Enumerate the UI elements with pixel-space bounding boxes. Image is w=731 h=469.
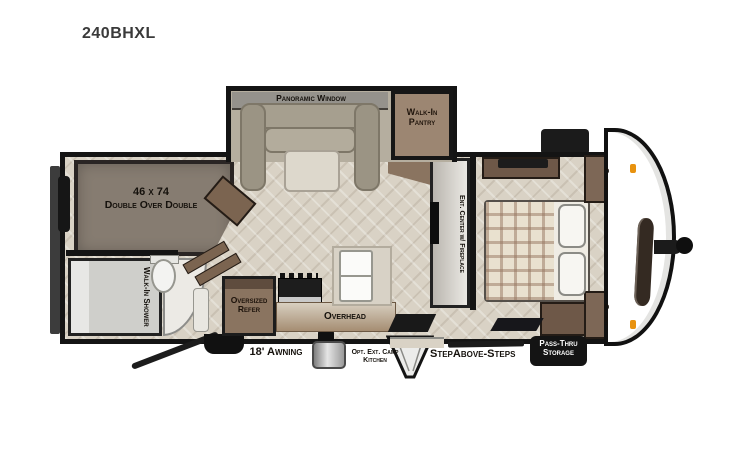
bedroom-nightstand [540, 302, 586, 336]
fireplace [430, 202, 439, 244]
sofa-right-arm [354, 103, 380, 191]
awning-bracket [204, 334, 244, 354]
pass-thru-storage-label: Pass-Thru Storage [531, 340, 586, 358]
marker-light [630, 320, 636, 329]
bed-pillow [558, 204, 586, 248]
bedroom-floor-mat [490, 318, 544, 331]
sink-divider [341, 275, 371, 277]
bed-pillow [558, 252, 586, 296]
toilet [151, 259, 176, 293]
entry-door-mat [388, 314, 436, 332]
bedroom-tv [498, 159, 548, 168]
bathroom-cabinet [193, 288, 209, 332]
refrigerator-label: Oversized Refer [226, 296, 272, 315]
closet-top-label: Closet [588, 158, 610, 200]
overhead-cabinet-label: Overhead [300, 311, 390, 322]
awning-label: 18' Awning [240, 346, 312, 358]
steps-rail [448, 340, 524, 347]
rear-window [58, 176, 70, 232]
exterior-camp-kitchen [312, 341, 346, 369]
bed-blanket [486, 202, 554, 300]
bunk-label: Double Over Double [80, 200, 222, 212]
camp-kitchen-label: Opt. Ext. Camp Kitchen [344, 349, 406, 364]
entry-door-opening [390, 337, 444, 348]
sofa-table [284, 150, 340, 192]
closet-bottom-label: Closet [588, 294, 610, 336]
walk-in-shower-label: Walk-In Shower [116, 262, 150, 332]
entertainment-center-label: Ent. Center w/ Fireplace [446, 163, 466, 305]
bedroom-wall [470, 157, 476, 310]
floorplan-canvas: 240BHXL Panoramic Window Walk-In Pantry … [0, 0, 731, 469]
walk-in-pantry-label: Walk-In Pantry [395, 108, 449, 128]
tongue-jack-knob [676, 237, 693, 254]
marker-light [630, 164, 636, 173]
sofa-left-arm [240, 103, 266, 191]
model-number-title: 240BHXL [82, 25, 156, 43]
panoramic-window-label: Panoramic Window [236, 94, 386, 103]
bunk-size-label: 46 x 74 [86, 186, 216, 198]
